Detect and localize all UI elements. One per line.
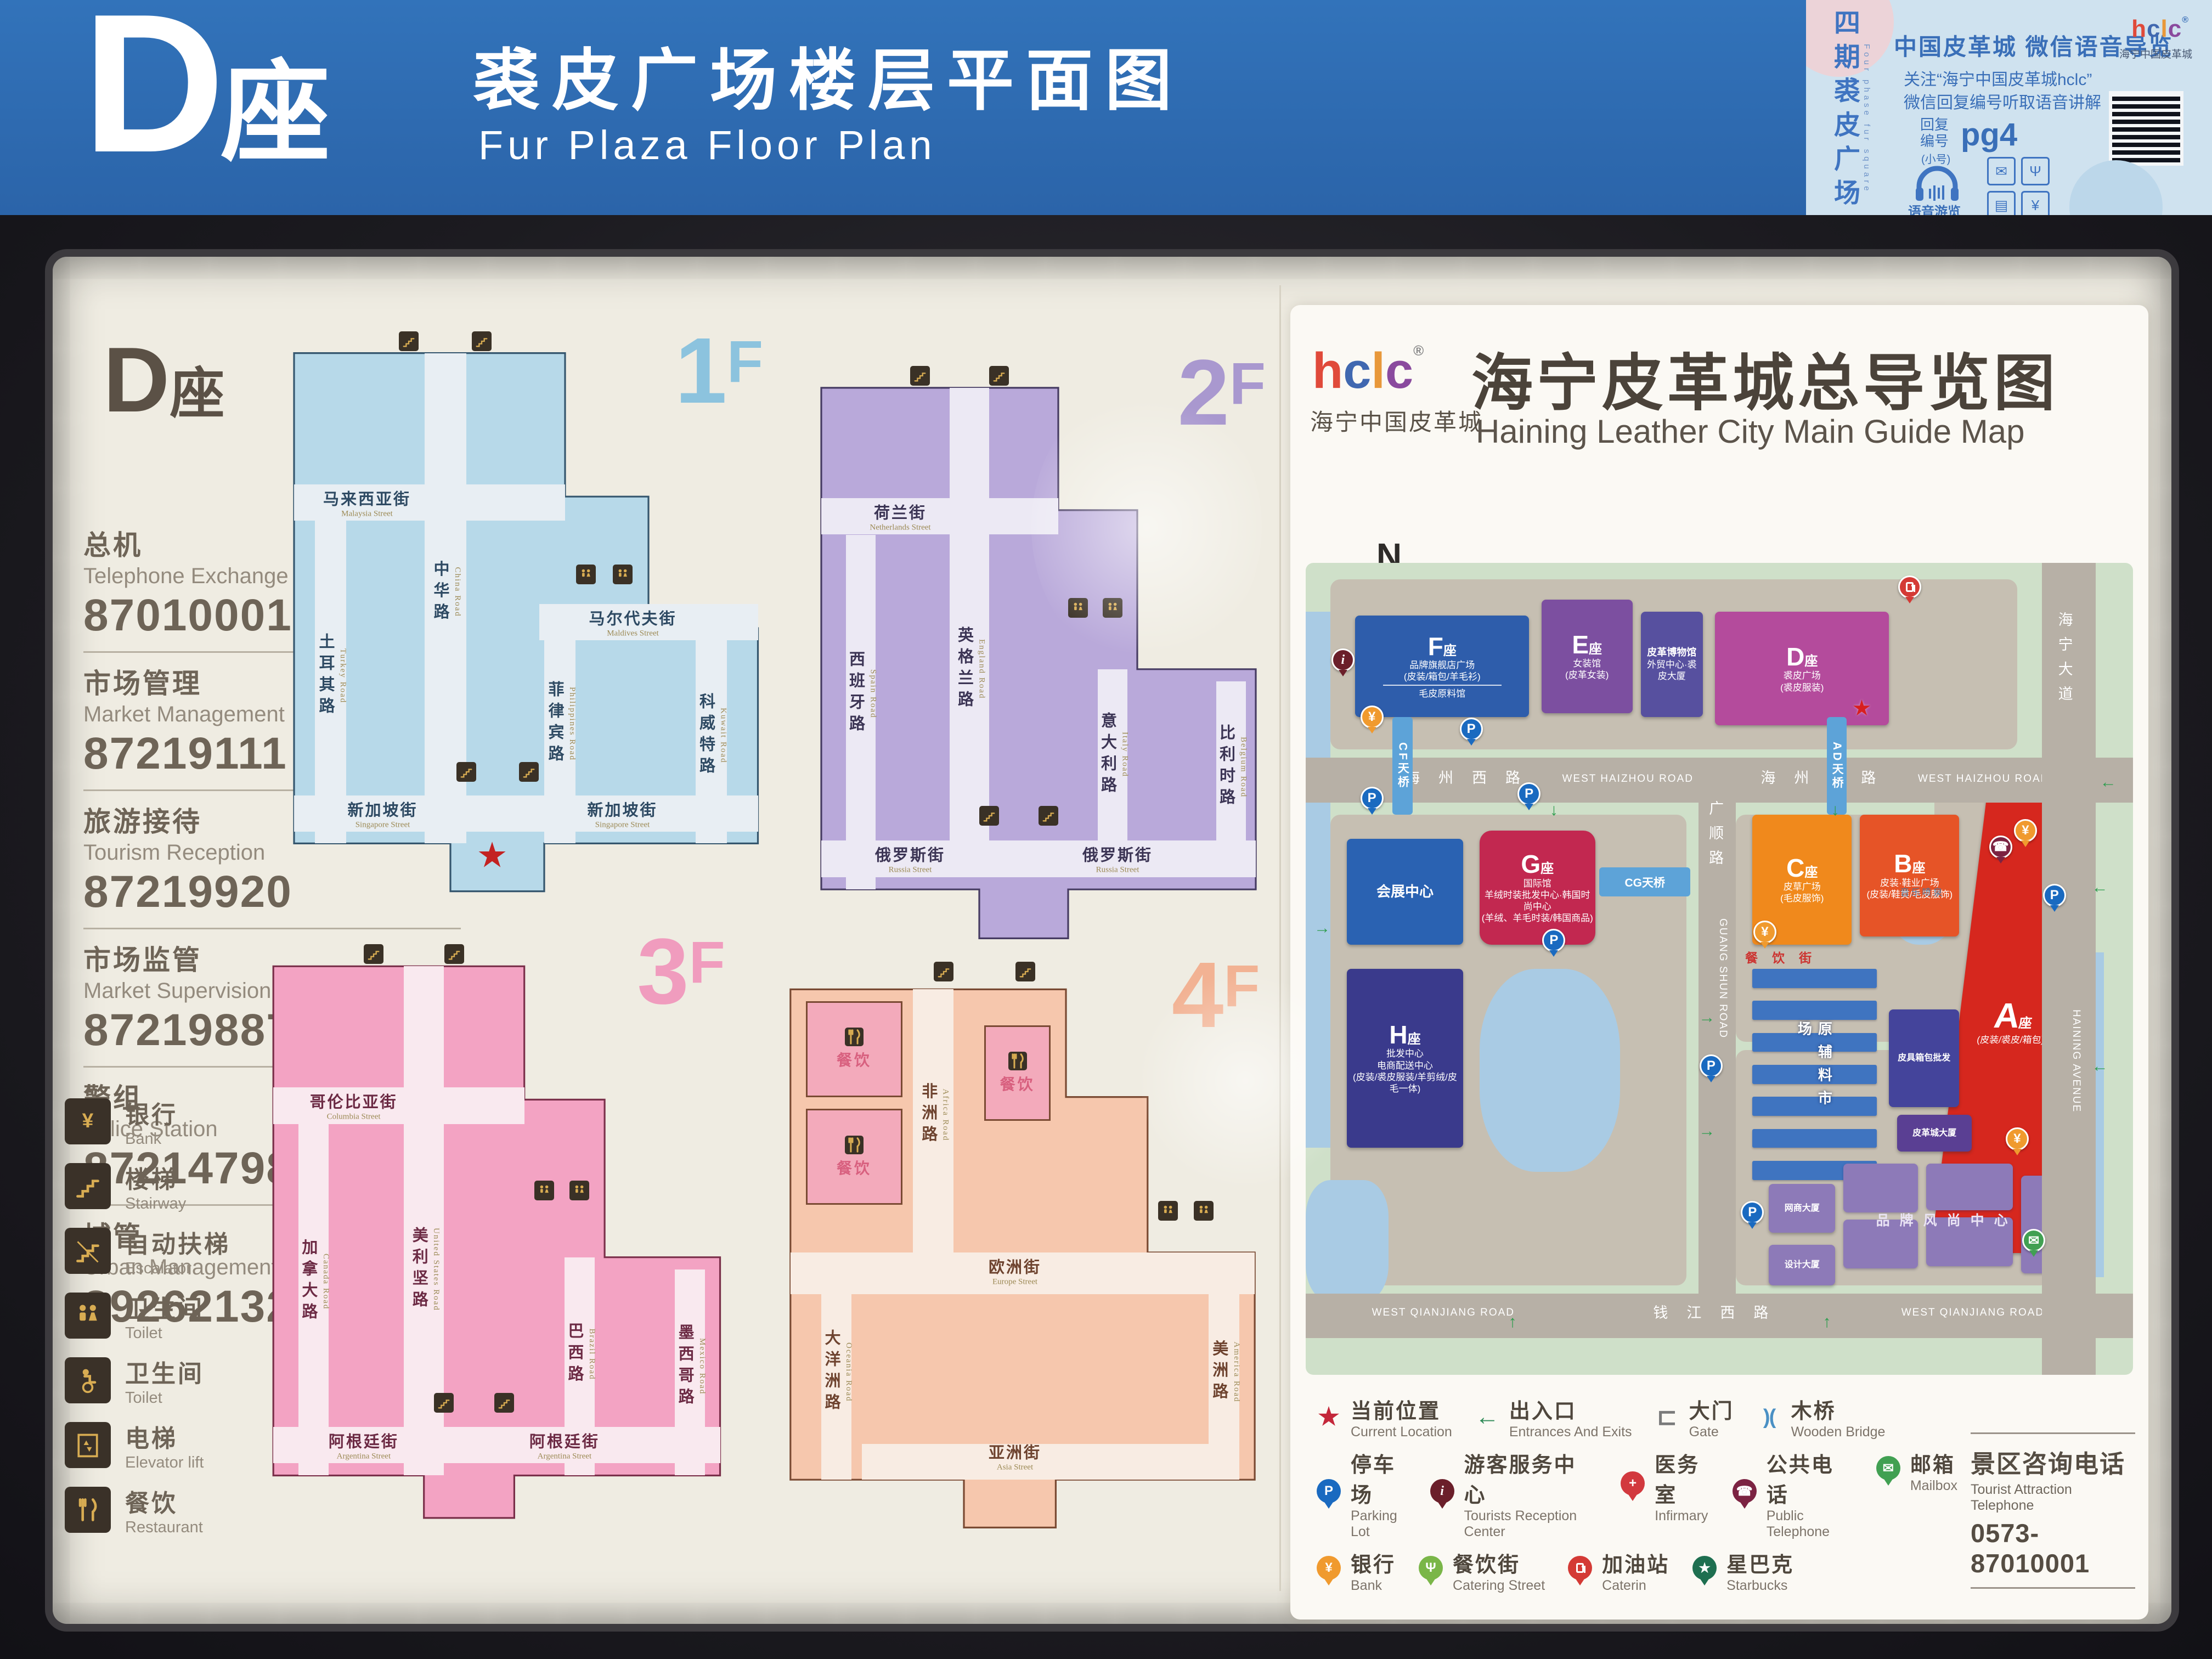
entrance-arrow-icon: ↑ (1509, 1313, 1517, 1331)
P-pin-icon: P (1542, 929, 1565, 952)
toilet-icon (569, 1181, 589, 1200)
street-en: Canada Road (321, 1239, 330, 1324)
street-label: 菲律宾路Philippines Road (543, 681, 577, 766)
street-zh: 美利坚路 (407, 1227, 430, 1312)
facility-item: 卫生间Toilet (65, 1283, 230, 1348)
legend-text: 当前位置Current Location (1351, 1394, 1452, 1440)
current-location-star: ★ (1852, 696, 1872, 721)
street-label: 美洲路America Road (1207, 1340, 1241, 1404)
building-name: G座 (1521, 851, 1554, 877)
toilet-icon (534, 1181, 554, 1200)
building-name: 皮革博物馆 (1647, 646, 1696, 659)
street-label: 土耳其路Turkey Road (314, 633, 347, 719)
panel-divider (1279, 285, 1281, 1591)
street-zh: 中华路 (428, 560, 452, 624)
street-en: Africa Road (941, 1083, 950, 1147)
street-en: England Road (977, 627, 986, 712)
map-building-d: D座裘皮广场(裘皮服装)★ (1715, 612, 1889, 725)
building-name: 会展中心 (1376, 883, 1434, 901)
P-pin-icon: P (1460, 718, 1483, 741)
building-line: 裘皮广场 (1784, 670, 1821, 681)
mail-pin-icon: ✉ (2022, 1229, 2045, 1252)
map-fashion-center: 品牌风尚中心 (1843, 1164, 2050, 1285)
entrance-arrow-icon: → (1314, 919, 1330, 938)
legend-text: 星巴克Starbucks (1726, 1548, 1794, 1594)
hotline-en: Tourist Attraction Telephone (1971, 1482, 2135, 1514)
legend-zh: 木桥 (1791, 1394, 1886, 1424)
street-en: Columbia Street (310, 1113, 398, 1122)
restaurant-zone: 餐饮 (984, 1025, 1051, 1121)
stairs-icon (364, 944, 383, 964)
toilet-icon (65, 1293, 111, 1339)
street-en: Kuwait Road (719, 693, 728, 778)
left-building-heading: D 座 (103, 334, 224, 426)
street-label: 巴西路Brazil Road (563, 1322, 596, 1386)
headphones-icon (1914, 165, 1961, 203)
legend-item: )(木桥Wooden Bridge (1755, 1394, 1886, 1440)
building-letter: D (82, 0, 221, 182)
street-label: 俄罗斯街Russia Street (1082, 843, 1153, 875)
hclc-logo-small-sub: 海宁中国皮革城 (2119, 46, 2192, 61)
yen-map-pin: ¥ (1753, 921, 1776, 949)
stairs-icon (979, 806, 999, 826)
facility-zh: 卫生间 (125, 1354, 204, 1389)
food-pin-tail (1426, 1579, 1435, 1585)
toilet-icon (1068, 598, 1088, 618)
P-pin-tail (1324, 1502, 1333, 1509)
hclc-logo-small: hclc® (2131, 15, 2189, 43)
P-map-pin: P (1361, 787, 1384, 815)
legend-item: ⊏大门Gate (1653, 1394, 1734, 1440)
street-en: Europe Street (989, 1277, 1041, 1286)
facility-zh: 银行 (125, 1095, 178, 1130)
wechat-audio-guide-poster: 四期裘皮广场 Four phase fur square 中国皮革城 微信语音导… (1806, 0, 2212, 215)
map-building-b: B座皮装·鞋业广场(皮装/鞋类/毛皮服饰) (1860, 815, 1959, 936)
facility-zh: 楼梯 (125, 1160, 186, 1195)
floor-badge-3f: 3F (637, 930, 725, 1014)
facility-zh: 卫生间 (125, 1289, 204, 1324)
street-zh: 非洲路 (917, 1083, 940, 1147)
header-banner: D 座 裘皮广场楼层平面图 Fur Plaza Floor Plan 四期裘皮广… (0, 0, 2212, 215)
facility-en: Toilet (125, 1389, 204, 1407)
street-label: 阿根廷街Argentina Street (329, 1429, 399, 1462)
legend-row: ¥银行BankΨ餐饮街Catering Street加油站Caterin★星巴克… (1314, 1548, 1978, 1594)
facility-item: 自动扶梯Escalator (65, 1218, 230, 1283)
fuel-pin-tail (1576, 1579, 1584, 1585)
fuel-pin-icon (1898, 575, 1921, 599)
market-stripe (1752, 1001, 1876, 1020)
P-map-pin: P (1542, 929, 1565, 957)
building-line: (毛皮服饰) (1780, 893, 1824, 904)
phone-pin-tail (1996, 857, 2005, 864)
phone-pin-tail (1740, 1502, 1749, 1509)
poster-reply-code: pg4 (1961, 116, 2017, 153)
street-en: Turkey Road (338, 633, 347, 719)
toilet-icon (576, 565, 596, 584)
legend-en: Current Location (1351, 1424, 1452, 1440)
stairs-icon (910, 366, 930, 386)
building-line: (皮革女装) (1565, 669, 1609, 681)
P-pin-tail (1748, 1222, 1757, 1229)
yen-map-pin: ¥ (1361, 706, 1384, 733)
street-label: 阿根廷街Argentina Street (529, 1429, 600, 1462)
info-pin-icon: i (1430, 1479, 1454, 1503)
poster-feature-icon: ¥ (2021, 191, 2050, 215)
street-zh: 亚洲街 (989, 1440, 1041, 1463)
P-pin-tail (1467, 739, 1476, 746)
bridge-ad: AD天桥 (1827, 717, 1847, 815)
legend-en: Public Telephone (1767, 1508, 1853, 1540)
street-zh: 意大利路 (1096, 712, 1119, 798)
corridor (821, 498, 1058, 535)
legend-item: ☎公共电话Public Telephone (1730, 1448, 1853, 1540)
stairs-icon (989, 366, 1009, 386)
hotline-number: 0573-87010001 (1971, 1518, 2135, 1578)
legend-en: Mailbox (1910, 1478, 1957, 1494)
restaurant-icon (65, 1487, 111, 1533)
street-en: Russia Street (1082, 866, 1153, 875)
elevator-icon (65, 1422, 111, 1468)
toilet-icon (1194, 1201, 1214, 1221)
entrance-arrow-icon: ← (2092, 1057, 2108, 1076)
poster-vertical-title: 四期裘皮广场 (1825, 9, 1863, 213)
legend-en: Tourists Reception Center (1464, 1508, 1598, 1540)
floor-badge-1f: 1F (675, 329, 763, 413)
starbucks-pin-tail (1700, 1579, 1709, 1585)
P-pin-icon: P (1517, 782, 1541, 805)
legend-zh: 星巴克 (1726, 1548, 1794, 1578)
legend-text: 停车场Parking Lot (1351, 1448, 1407, 1540)
entrance-arrow-icon: ← (2092, 878, 2108, 897)
street-en: Belgium Road (1239, 724, 1248, 810)
street-en: America Road (1232, 1340, 1241, 1404)
street-label: 中华路China Road (428, 560, 462, 624)
poster-code-note: (小号) (1921, 150, 1950, 166)
map-building-small: 网商大厦 (1769, 1184, 1835, 1233)
yen-pin-tail (2013, 1149, 2022, 1155)
street-zh: 俄罗斯街 (1082, 843, 1153, 866)
entrance-arrow-icon: ← (2100, 773, 2117, 792)
building-line: (皮装/裘皮/箱包) (1977, 1034, 2045, 1046)
P-pin-icon: P (1700, 1054, 1723, 1077)
building-name: D座 (1786, 644, 1818, 670)
hclc-logo-sub: 海宁中国皮革城 (1310, 404, 1483, 437)
legend-zh: 医务室 (1655, 1448, 1709, 1508)
facility-text: 卫生间Toilet (125, 1289, 204, 1342)
restaurant-label: 餐饮 (837, 1156, 872, 1178)
building-name: B座 (1894, 850, 1925, 877)
guide-map-title: 海宁皮革城总导览图 (1471, 334, 2059, 422)
poster-reply-label: 回复编号 (1920, 116, 1949, 149)
poster-feature-icon: ▤ (1987, 191, 2016, 215)
P-map-pin: P (1741, 1201, 1764, 1229)
street-en: Philippines Road (567, 681, 577, 766)
street-label: 哥伦比亚街Columbia Street (310, 1090, 398, 1122)
facility-zh: 电梯 (125, 1419, 204, 1454)
facility-zh: 餐饮 (125, 1483, 203, 1519)
poster-line2: 关注“海宁中国皮革城hclc” (1904, 66, 2092, 90)
map-legend: ★当前位置Current Location←出入口Entrances And E… (1314, 1394, 1978, 1601)
guide-map-card: hclc® 海宁中国皮革城 海宁皮革城总导览图 Haining Leather … (1290, 305, 2148, 1620)
P-pin-icon: P (1317, 1479, 1341, 1503)
star-icon: ★ (1314, 1405, 1343, 1429)
facility-en: Toilet (125, 1324, 204, 1342)
entrance-arrow-icon: → (1699, 1008, 1715, 1027)
starbucks-pin-icon: ★ (1692, 1556, 1717, 1580)
street-zh: 加拿大路 (297, 1239, 320, 1324)
legend-text: 加油站Caterin (1602, 1548, 1669, 1594)
stairs-icon (399, 331, 419, 351)
legend-zh: 公共电话 (1767, 1448, 1853, 1508)
legend-text: 银行Bank (1351, 1548, 1396, 1594)
cluster-block (1926, 1164, 2013, 1210)
toilet-icon (1158, 1201, 1178, 1221)
building-name: 网商大厦 (1785, 1203, 1820, 1214)
floor-plan-1f: 马来西亚街Malaysia Street中华路China Road土耳其路Tur… (252, 329, 774, 927)
left-heading-letter: D (103, 334, 170, 426)
floor-plan-2f: 荷兰街Netherlands Street西班牙路Spain Road英格兰路E… (782, 351, 1276, 963)
toilet2-icon (65, 1357, 111, 1403)
building-line: 女装馆 (1573, 658, 1601, 669)
street-en: Oceania Road (844, 1329, 853, 1415)
street-zh: 荷兰街 (870, 500, 930, 523)
floor-plan-4f: 餐饮餐饮餐饮非洲路Africa Road欧洲街Europe Street大洋洲路… (760, 953, 1270, 1551)
P-pin-icon: P (2043, 884, 2066, 907)
building-line: 电商配送中心 (1377, 1060, 1433, 1071)
legend-item: i游客服务中心Tourists Reception Center (1428, 1448, 1598, 1540)
street-label: 欧洲街Europe Street (989, 1254, 1041, 1286)
building-line: (裘皮服装) (1780, 682, 1824, 693)
restaurant-icon (1008, 1052, 1027, 1070)
toilet-icon (1103, 598, 1122, 618)
facility-text: 楼梯Stairway (125, 1160, 186, 1213)
yen-pin-tail (1324, 1579, 1333, 1585)
facility-text: 餐饮Restaurant (125, 1483, 203, 1537)
yen-pin-icon: ¥ (2014, 819, 2037, 842)
P-pin-tail (2050, 905, 2059, 912)
building-line: 毛皮原料馆 (1419, 688, 1465, 699)
fuel-pin-icon (1568, 1556, 1592, 1580)
qr-code (2112, 94, 2180, 162)
banner-title-en: Fur Plaza Floor Plan (478, 122, 936, 168)
legend-text: 公共电话Public Telephone (1767, 1448, 1853, 1540)
P-map-pin: P (1700, 1054, 1723, 1082)
hclc-logo: hclc® (1312, 342, 1424, 400)
legend-en: Wooden Bridge (1791, 1424, 1886, 1440)
map-label: 餐饮街 (1745, 947, 1826, 966)
yen-pin-icon: ¥ (2006, 1127, 2029, 1150)
toilet-icon (613, 565, 633, 584)
floor-badge-2f: 2F (1177, 351, 1266, 435)
entrance-arrow-icon: ↑ (1823, 1313, 1831, 1331)
legend-row: ★当前位置Current Location←出入口Entrances And E… (1314, 1394, 1978, 1440)
info-pin-icon: i (1331, 648, 1355, 672)
street-label: 科威特路Kuwait Road (695, 693, 728, 778)
legend-text: 大门Gate (1689, 1394, 1734, 1440)
mail-pin-tail (1884, 1479, 1893, 1486)
street-zh: 新加坡街 (347, 797, 417, 820)
mail-map-pin: ✉ (2022, 1229, 2045, 1257)
stairs-icon (472, 331, 492, 351)
legend-en: Bank (1351, 1578, 1396, 1594)
street-label: 马尔代夫街Maldives Street (589, 606, 676, 639)
stairs-icon (494, 1393, 514, 1413)
facility-text: 卫生间Toilet (125, 1354, 204, 1407)
market-stripe (1752, 969, 1876, 988)
building-line: 皮草广场 (1784, 881, 1821, 893)
building-name: F座 (1428, 633, 1457, 659)
floor-badge-4f: 4F (1172, 953, 1260, 1037)
map-building-expo: 会展中心 (1347, 839, 1463, 944)
phone-pin-icon: ☎ (1733, 1479, 1757, 1503)
street-zh: 土耳其路 (314, 633, 337, 719)
P-map-pin: P (1460, 718, 1483, 746)
street-zh: 美洲路 (1207, 1340, 1231, 1404)
street-zh: 西班牙路 (844, 651, 867, 736)
street-label: 加拿大路Canada Road (297, 1239, 330, 1324)
building-line: 外贸中心·裘皮大厦 (1643, 659, 1701, 682)
market-stripe (1752, 1129, 1876, 1148)
yen-pin-tail (1368, 727, 1376, 733)
floor-plan-3f: 哥伦比亚街Columbia Street加拿大路Canada Road美利坚路U… (233, 930, 735, 1536)
food-pin-icon: Ψ (1419, 1556, 1443, 1580)
building-line: 国际馆 (1523, 878, 1551, 889)
info-map-pin: i (1331, 648, 1355, 676)
bridge-cf: CF天桥 (1392, 717, 1412, 815)
legend-text: 餐饮街Catering Street (1453, 1548, 1545, 1594)
building-line: 批发中心 (1386, 1048, 1424, 1059)
legend-item: ★星巴克Starbucks (1690, 1548, 1794, 1594)
legend-en: Infirmary (1655, 1508, 1709, 1524)
building-divider (1383, 685, 1502, 686)
guide-map-subtitle: Haining Leather City Main Guide Map (1476, 413, 2025, 450)
stairs-icon (444, 944, 464, 964)
street-en: Singapore Street (587, 820, 657, 830)
fuel-map-pin (1898, 575, 1921, 603)
hotline-block: 景区咨询电话 Tourist Attraction Telephone 0573… (1971, 1432, 2135, 1589)
restaurant-label: 餐饮 (837, 1048, 872, 1070)
map-label: 音乐喷泉 (1900, 885, 1944, 899)
stairs-icon (434, 1393, 454, 1413)
arrow-icon: ← (1473, 1405, 1502, 1429)
facility-item: 餐饮Restaurant (65, 1477, 230, 1542)
street-en: Singapore Street (347, 820, 417, 830)
street-zh: 俄罗斯街 (875, 843, 945, 866)
street-label: 新加坡街Singapore Street (587, 797, 657, 830)
street-zh: 新加坡街 (587, 797, 657, 820)
map-water (1480, 969, 1620, 1172)
facility-item: 卫生间Toilet (65, 1348, 230, 1413)
building-name: C座 (1786, 855, 1818, 881)
building-name: H座 (1389, 1022, 1420, 1048)
poster-vertical-subtitle: Four phase fur square (1862, 44, 1871, 194)
legend-zh: 邮箱 (1910, 1448, 1957, 1478)
street-label: 亚洲街Asia Street (989, 1440, 1041, 1472)
current-location-star: ★ (476, 835, 507, 876)
street-en: Argentina Street (529, 1452, 600, 1462)
street-en: United States Road (431, 1227, 441, 1312)
facility-item: ¥银行Bank (65, 1089, 230, 1154)
poster-audio-label: 语音游览 (1908, 201, 1961, 215)
legend-item: ✉邮箱Mailbox (1874, 1448, 1957, 1494)
street-zh: 阿根廷街 (329, 1429, 399, 1452)
stairs-icon (519, 762, 539, 782)
street-zh: 比利时路 (1215, 724, 1238, 810)
legend-item: ←出入口Entrances And Exits (1473, 1394, 1632, 1440)
building-name: 皮革城大厦 (1912, 1128, 1956, 1139)
legend-item: ¥银行Bank (1314, 1548, 1396, 1594)
yen-pin-icon: ¥ (1317, 1556, 1341, 1580)
info-pin-tail (1438, 1502, 1447, 1509)
building-line: (皮装/箱包/羊毛衫) (1404, 671, 1481, 682)
street-en: China Road (453, 560, 462, 624)
legend-zh: 当前位置 (1351, 1394, 1452, 1424)
facility-en: Escalator (125, 1260, 230, 1278)
street-label: 大洋洲路Oceania Road (820, 1329, 853, 1415)
entrance-arrow-icon: → (1699, 1122, 1715, 1141)
legend-text: 邮箱Mailbox (1910, 1448, 1957, 1494)
entrance-arrow-icon: ↓ (1831, 801, 1839, 820)
legend-text: 游客服务中心Tourists Reception Center (1464, 1448, 1598, 1540)
yen-pin-icon: ¥ (1753, 921, 1776, 944)
mail-pin-tail (2029, 1250, 2038, 1257)
yen-pin-tail (1760, 942, 1769, 949)
building-name: 皮具箱包批发 (1898, 1053, 1950, 1064)
street-zh: 哥伦比亚街 (310, 1090, 398, 1113)
guide-map: 海州西路 WEST HAIZHOU ROAD 海州西路 WEST HAIZHOU… (1306, 563, 2133, 1375)
street-label: 意大利路Italy Road (1096, 712, 1130, 798)
signboard-photo: D 座 裘皮广场楼层平面图 Fur Plaza Floor Plan 四期裘皮广… (0, 0, 2212, 1659)
legend-zh: 加油站 (1602, 1548, 1669, 1578)
facility-legend: ¥银行Bank楼梯Stairway自动扶梯Escalator卫生间Toilet卫… (65, 1089, 230, 1542)
legend-en: Catering Street (1453, 1578, 1545, 1594)
legend-en: Entrances And Exits (1509, 1424, 1632, 1440)
street-en: Malaysia Street (323, 510, 411, 519)
building-name: A座 (1992, 997, 2035, 1034)
street-zh: 科威特路 (695, 693, 718, 778)
med-pin-tail (1628, 1494, 1637, 1501)
street-zh: 马尔代夫街 (589, 606, 676, 629)
building-line: 品牌旗舰店广场 (1409, 659, 1475, 671)
P-map-pin: P (2043, 884, 2066, 912)
info-pin-tail (1339, 670, 1347, 676)
road-west-qianjiang: WEST QIANJIANG ROAD 钱江西路 WEST QIANJIANG … (1306, 1294, 2133, 1338)
facility-en: Stairway (125, 1195, 186, 1213)
yen-pin-icon: ¥ (1361, 706, 1384, 729)
legend-zh: 出入口 (1509, 1394, 1632, 1424)
P-pin-icon: P (1361, 787, 1384, 810)
facility-text: 电梯Elevator lift (125, 1419, 204, 1472)
hotline-zh: 景区咨询电话 (1971, 1444, 2135, 1480)
map-building-small: 设计大厦 (1769, 1245, 1835, 1285)
legend-en: Caterin (1602, 1578, 1669, 1594)
street-zh: 马来西亚街 (323, 487, 411, 510)
P-pin-tail (1525, 804, 1533, 810)
poster-feature-icon: Ψ (2021, 157, 2050, 185)
gate-icon: ⊏ (1653, 1405, 1681, 1429)
bridge-icon: )( (1755, 1407, 1784, 1427)
street-en: Argentina Street (329, 1452, 399, 1462)
legend-en: Parking Lot (1351, 1508, 1407, 1540)
building-line: (羊绒、羊毛时装/韩国商品) (1482, 912, 1593, 924)
restaurant-zone: 餐饮 (806, 1109, 903, 1204)
building-name: E座 (1572, 631, 1602, 658)
facility-en: Bank (125, 1130, 178, 1148)
P-pin-tail (1707, 1076, 1716, 1082)
legend-zh: 停车场 (1351, 1448, 1407, 1508)
facility-en: Elevator lift (125, 1454, 204, 1472)
med-pin-icon: + (1621, 1471, 1645, 1496)
